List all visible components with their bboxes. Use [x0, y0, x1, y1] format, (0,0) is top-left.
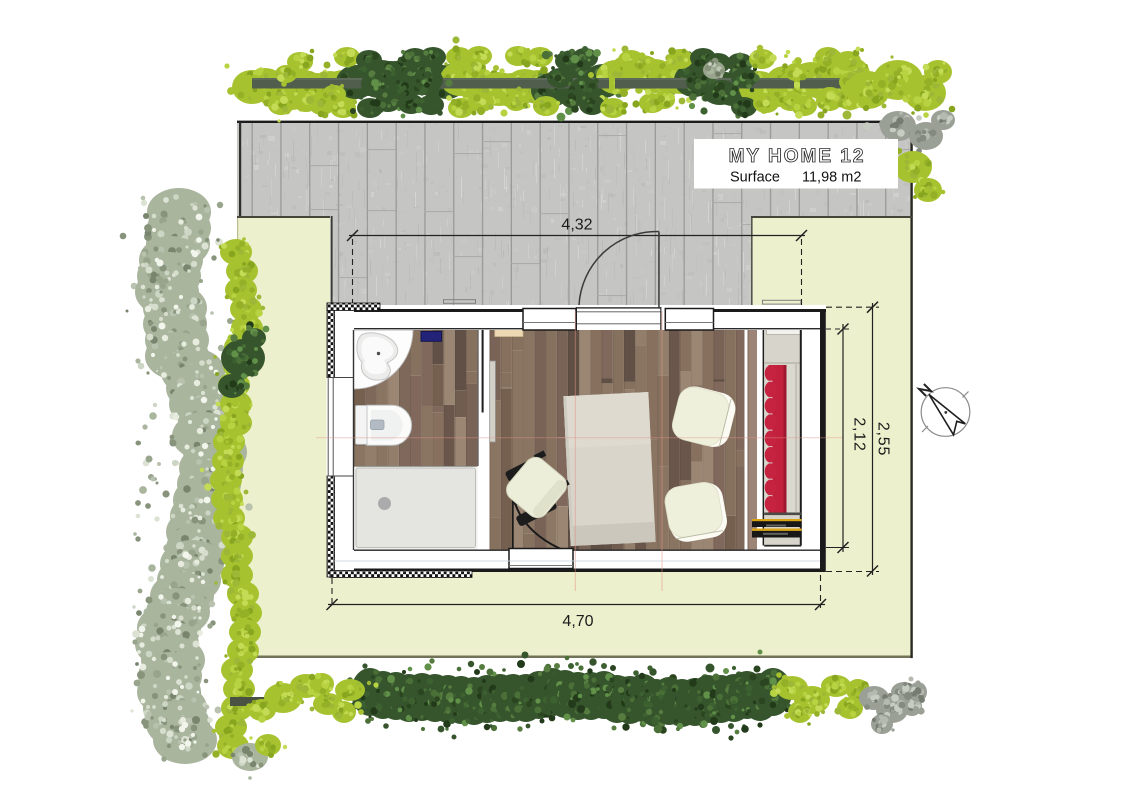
svg-text:MY HOME 12: MY HOME 12 [729, 146, 866, 167]
svg-text:4,32: 4,32 [561, 217, 592, 234]
svg-text:Surface: Surface [730, 170, 780, 186]
svg-text:4,70: 4,70 [562, 613, 593, 630]
svg-text:11,98 m2: 11,98 m2 [802, 170, 861, 186]
svg-text:2,55: 2,55 [875, 422, 892, 456]
svg-text:2,12: 2,12 [851, 417, 868, 451]
